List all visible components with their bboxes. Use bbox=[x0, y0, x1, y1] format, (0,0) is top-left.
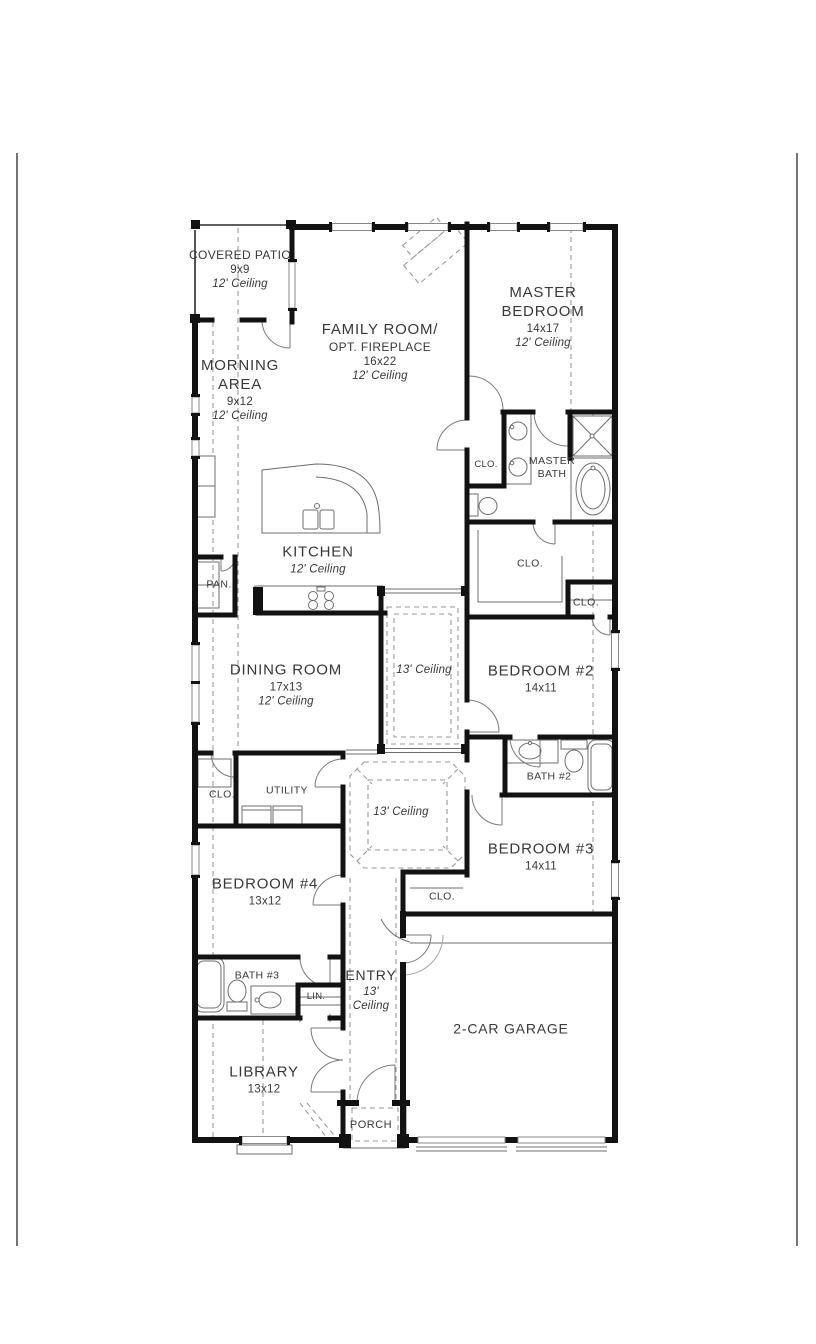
room-label-master-bedroom: MASTER BEDROOM 14x17 12' Ceiling bbox=[501, 284, 584, 350]
room-label-pantry: PAN. bbox=[206, 578, 231, 591]
room-label-master-bath: MASTER BATH bbox=[529, 455, 575, 481]
room-label-bedroom2-closet: CLO. bbox=[573, 596, 599, 609]
room-dims: 14x11 bbox=[488, 681, 594, 695]
room-dims: 13x12 bbox=[229, 1082, 299, 1096]
room-ceiling-line2: Ceiling bbox=[345, 999, 396, 1013]
room-name: BEDROOM #3 bbox=[488, 840, 594, 859]
room-name2: AREA bbox=[201, 376, 279, 395]
room-name: KITCHEN bbox=[282, 543, 353, 562]
room-name: COVERED PATIO bbox=[189, 248, 291, 263]
room-label-utility: UTILITY bbox=[266, 784, 308, 797]
room-dims: 14x17 bbox=[501, 321, 584, 335]
optional-fireplace-outline bbox=[393, 212, 468, 284]
room-name: CLO. bbox=[474, 459, 497, 471]
room-subname: OPT. FIREPLACE bbox=[322, 340, 439, 355]
room-ceiling: 12' Ceiling bbox=[282, 562, 353, 576]
room-name: PAN. bbox=[206, 578, 231, 591]
room-name2: BATH bbox=[529, 468, 575, 481]
floor-plan-page: COVERED PATIO 9x9 12' Ceiling FAMILY ROO… bbox=[0, 0, 816, 1344]
room-label-bath2: BATH #2 bbox=[527, 770, 572, 783]
room-name: FAMILY ROOM/ bbox=[322, 321, 439, 340]
room-name: BATH #2 bbox=[527, 770, 572, 783]
room-label-library: LIBRARY 13x12 bbox=[229, 1063, 299, 1096]
room-dims: 9x12 bbox=[201, 394, 279, 408]
room-ceiling: 13' Ceiling bbox=[373, 805, 429, 819]
room-name: DINING ROOM bbox=[230, 661, 342, 680]
room-label-hall-ceiling: 13' Ceiling bbox=[373, 805, 429, 819]
room-label-porch: PORCH bbox=[350, 1119, 392, 1133]
room-label-covered-patio: COVERED PATIO 9x9 12' Ceiling bbox=[189, 248, 291, 292]
room-ceiling: 12' Ceiling bbox=[230, 694, 342, 708]
room-dims: 14x11 bbox=[488, 859, 594, 873]
room-label-bedroom3-closet: CLO. bbox=[429, 890, 455, 903]
room-name: 2-CAR GARAGE bbox=[453, 1020, 568, 1038]
room-label-bedroom3: BEDROOM #3 14x11 bbox=[488, 840, 594, 873]
room-dims: 17x13 bbox=[230, 680, 342, 694]
room-dims: 16x22 bbox=[322, 355, 439, 369]
room-name: PORCH bbox=[350, 1119, 392, 1133]
room-label-bath3: BATH #3 bbox=[235, 969, 280, 982]
room-label-bath-hall-closet: CLO. bbox=[474, 459, 497, 471]
room-name2: BEDROOM bbox=[501, 303, 584, 322]
bath3-fixtures bbox=[194, 957, 296, 1014]
bath2-fixtures bbox=[506, 740, 615, 794]
room-name: CLO. bbox=[429, 890, 455, 903]
room-name: MASTER bbox=[501, 284, 584, 303]
room-label-master-closet: CLO. bbox=[517, 557, 543, 570]
room-label-linen: LIN. bbox=[307, 991, 326, 1003]
room-name: MASTER bbox=[529, 455, 575, 468]
room-label-garage: 2-CAR GARAGE bbox=[453, 1020, 568, 1038]
room-ceiling: 12' Ceiling bbox=[322, 369, 439, 383]
room-label-dining-room: DINING ROOM 17x13 12' Ceiling bbox=[230, 661, 342, 709]
room-name: CLO. bbox=[573, 596, 599, 609]
room-dims: 9x9 bbox=[189, 263, 291, 277]
room-label-bedroom4: BEDROOM #4 13x12 bbox=[212, 875, 318, 908]
room-ceiling-line1: 13' bbox=[345, 984, 396, 998]
room-label-family-room: FAMILY ROOM/ OPT. FIREPLACE 16x22 12' Ce… bbox=[322, 321, 439, 384]
room-label-entry: ENTRY 13' Ceiling bbox=[345, 967, 396, 1013]
room-name: CLO. bbox=[517, 557, 543, 570]
room-name: UTILITY bbox=[266, 784, 308, 797]
room-label-bedroom2: BEDROOM #2 14x11 bbox=[488, 662, 594, 695]
room-label-kitchen: KITCHEN 12' Ceiling bbox=[282, 543, 353, 576]
room-name: MORNING bbox=[201, 357, 279, 376]
room-name: BEDROOM #4 bbox=[212, 875, 318, 894]
room-label-bedroom4-closet: CLO. bbox=[209, 788, 235, 801]
room-ceiling: 12' Ceiling bbox=[501, 336, 584, 350]
room-label-gallery-ceiling: 13' Ceiling bbox=[396, 663, 452, 677]
room-ceiling: 13' Ceiling bbox=[396, 663, 452, 677]
page-edge-lines bbox=[17, 153, 797, 1246]
room-ceiling: 12' Ceiling bbox=[189, 278, 291, 292]
room-label-morning-area: MORNING AREA 9x12 12' Ceiling bbox=[201, 357, 279, 423]
room-dims: 13x12 bbox=[212, 894, 318, 908]
room-name: BATH #3 bbox=[235, 969, 280, 982]
room-ceiling: 12' Ceiling bbox=[201, 409, 279, 423]
room-name: ENTRY bbox=[345, 967, 396, 985]
room-name: LIBRARY bbox=[229, 1063, 299, 1082]
room-name: CLO. bbox=[209, 788, 235, 801]
room-name: BEDROOM #2 bbox=[488, 662, 594, 681]
room-name: LIN. bbox=[307, 991, 326, 1003]
